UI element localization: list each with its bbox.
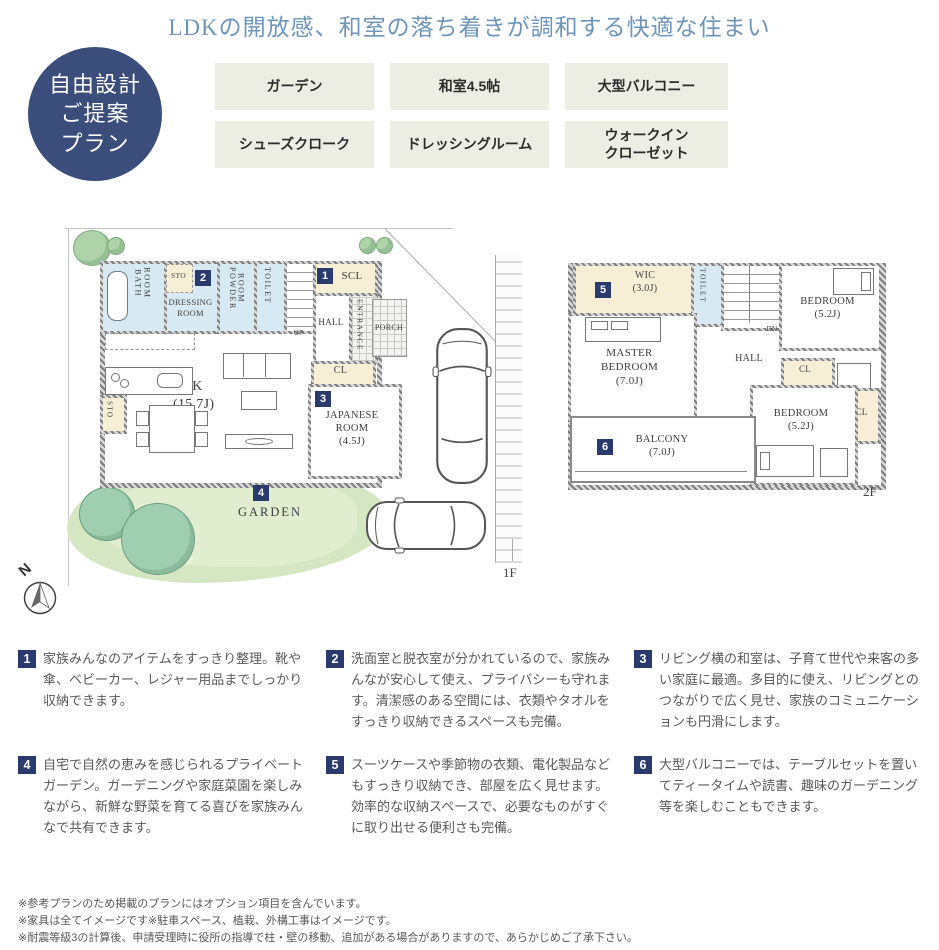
label-up: UP xyxy=(289,330,309,339)
sofa xyxy=(223,353,291,379)
feature-item-3: 3 リビング横の和室は、子育て世代や来客の多い家庭に最適。多目的に使え、リビング… xyxy=(634,648,926,732)
sofa-divider xyxy=(265,353,266,377)
feature-number-6: 6 xyxy=(634,756,652,774)
car-icon xyxy=(365,497,487,559)
footnote-3: ※耐震等級3の計算後、申請受理時に役所の指導で柱・壁の移動、追加がある場合があり… xyxy=(18,930,928,947)
plan-badge-line2: ご提案 xyxy=(60,99,129,128)
floor-plan-2f: 5 WIC (3.0J) TOILET DN BEDROOM (5.2J) MA… xyxy=(545,255,937,505)
chair-icon xyxy=(136,411,149,426)
pillow-icon xyxy=(760,452,770,470)
label-bedroom2: BEDROOM (5.2J) xyxy=(750,407,852,433)
footnote-1: ※参考プランのため掲載のプランにはオプション項目を含んでいます。 xyxy=(18,896,928,913)
stairs-down xyxy=(721,263,785,331)
label-entrance: ENTRANCE xyxy=(355,299,363,351)
feature-number-5: 5 xyxy=(326,756,344,774)
tag-shoes-closet: シューズクローク xyxy=(215,121,374,168)
tag-dressing-room: ドレッシングルーム xyxy=(390,121,549,168)
feature-text-4: 自宅で自然の恵みを感じられるプライベートガーデン。ガーデニングや家庭菜園を楽しみ… xyxy=(43,754,310,838)
driveway xyxy=(495,255,522,563)
stove-burner-icon xyxy=(111,373,120,382)
label-garden: GARDEN xyxy=(215,505,325,521)
stove-burner-icon xyxy=(120,379,129,388)
tree-icon xyxy=(107,237,125,255)
tree-icon xyxy=(359,237,376,254)
chair-icon xyxy=(195,411,208,426)
plan-badge-line3: プラン xyxy=(60,129,129,158)
floor-label-1f: 1F xyxy=(503,565,517,581)
label-dressing: DRESSING ROOM xyxy=(164,297,217,318)
tv-icon xyxy=(245,438,273,445)
tag-garden: ガーデン xyxy=(215,63,374,110)
tree-icon xyxy=(376,237,393,254)
label-bathroom: BATH ROOM xyxy=(133,267,152,299)
desk xyxy=(820,448,848,477)
label-balcony: BALCONY (7.0J) xyxy=(617,433,707,459)
label-bedroom1: BEDROOM (5.2J) xyxy=(779,295,876,321)
label-wic: WIC (3.0J) xyxy=(617,270,673,295)
tag-walk-in-closet: ウォークイン クローゼット xyxy=(565,121,728,168)
feature-number-1: 1 xyxy=(18,650,36,668)
label-toilet-2f: TOILET xyxy=(698,268,706,303)
pillow-icon xyxy=(611,321,628,330)
feature-text-5: スーツケースや季節物の衣類、電化製品などもすっきり収納でき、部屋を広く見せます。… xyxy=(351,754,618,838)
bush-icon xyxy=(121,503,195,575)
feature-number-2: 2 xyxy=(326,650,344,668)
label-powder: POWDER ROOM xyxy=(227,267,245,310)
label-japanese: JAPANESE ROOM (4.5J) xyxy=(308,409,396,448)
label-master-bedroom: MASTER BEDROOM (7.0J) xyxy=(568,347,691,388)
balcony-railing xyxy=(575,471,747,472)
label-toilet-1f: TOILET xyxy=(262,267,271,304)
footnote-2: ※家具は全てイメージです※駐車スペース、植栽、外構工事はイメージです。 xyxy=(18,913,928,930)
sofa-divider xyxy=(243,353,244,377)
chair-icon xyxy=(195,432,208,447)
sink-icon xyxy=(157,373,183,388)
tag-japanese-room: 和室4.5帖 xyxy=(390,63,549,110)
page-title: LDKの開放感、和室の落ち着きが調和する快適な住まい xyxy=(0,8,939,42)
stairs-divider xyxy=(749,265,750,323)
feature-descriptions: 1 家族みんなのアイテムをすっきり整理。靴や傘、ベビーカー、レジャー用品までしっ… xyxy=(18,648,926,838)
label-hall-2f: HALL xyxy=(719,353,779,366)
feature-item-5: 5 スーツケースや季節物の衣類、電化製品などもすっきり収納でき、部屋を広く見せま… xyxy=(326,754,618,838)
feature-tags: ガーデン 和室4.5帖 大型バルコニー シューズクローク ドレッシングルーム ウ… xyxy=(215,63,728,168)
kitchen-cabinets xyxy=(105,333,195,350)
car-icon xyxy=(431,327,493,490)
bathtub-icon xyxy=(107,271,128,321)
coffee-table xyxy=(241,391,277,410)
plan-badge-line1: 自由設計 xyxy=(49,70,141,99)
feature-text-2: 洗面室と脱衣室が分かれているので、家族みんなが安心して使え、プライバシーも守れま… xyxy=(351,648,618,732)
marker-4: 4 xyxy=(253,485,269,501)
marker-1: 1 xyxy=(317,268,333,284)
label-hall-1f: HALL xyxy=(311,317,351,328)
feature-item-4: 4 自宅で自然の恵みを感じられるプライベートガーデン。ガーデニングや家庭菜園を楽… xyxy=(18,754,310,838)
dining-table xyxy=(149,405,195,453)
compass-n-label: N xyxy=(16,560,35,580)
feature-text-6: 大型バルコニーでは、テーブルセットを置いてティータイムや読書、趣味のガーデニング… xyxy=(659,754,926,817)
pillow-icon xyxy=(861,272,871,291)
feature-number-4: 4 xyxy=(18,756,36,774)
feature-text-1: 家族みんなのアイテムをすっきり整理。靴や傘、ベビーカー、レジャー用品までしっかり… xyxy=(43,648,310,711)
label-sto-kitchen: STO xyxy=(105,401,113,419)
plan-badge: 自由設計 ご提案 プラン xyxy=(28,47,162,181)
label-porch: PORCH xyxy=(370,323,408,333)
feature-item-6: 6 大型バルコニーでは、テーブルセットを置いてティータイムや読書、趣味のガーデニ… xyxy=(634,754,926,838)
pillow-icon xyxy=(591,321,608,330)
floor-label-2f: 2F xyxy=(863,484,877,500)
footnotes: ※参考プランのため掲載のプランにはオプション項目を含んでいます。 ※家具は全てイ… xyxy=(18,896,928,947)
label-scl: SCL xyxy=(335,270,369,284)
marker-2: 2 xyxy=(195,270,211,286)
floor-plan-1f: 4 GARDEN BATH ROOM STO 2 DRESSING ROOM xyxy=(65,215,525,615)
lot-line-top xyxy=(65,228,453,229)
label-cl-mid: CL xyxy=(781,364,829,375)
feature-text-3: リビング横の和室は、子育て世代や来客の多い家庭に最適。多目的に使え、リビングとの… xyxy=(659,648,926,732)
marker-5: 5 xyxy=(595,282,611,298)
label-cl-1f: CL xyxy=(311,365,370,378)
feature-number-3: 3 xyxy=(634,650,652,668)
label-storage-top: STO xyxy=(166,271,191,280)
feature-item-2: 2 洗面室と脱衣室が分かれているので、家族みんなが安心して使え、プライバシーも守… xyxy=(326,648,618,732)
marker-6: 6 xyxy=(597,439,613,455)
lot-corner-line xyxy=(512,539,513,561)
chair-icon xyxy=(136,432,149,447)
marker-3: 3 xyxy=(315,391,331,407)
tag-balcony: 大型バルコニー xyxy=(565,63,728,110)
feature-item-1: 1 家族みんなのアイテムをすっきり整理。靴や傘、ベビーカー、レジャー用品までしっ… xyxy=(18,648,310,732)
north-compass-icon: N xyxy=(16,558,62,625)
